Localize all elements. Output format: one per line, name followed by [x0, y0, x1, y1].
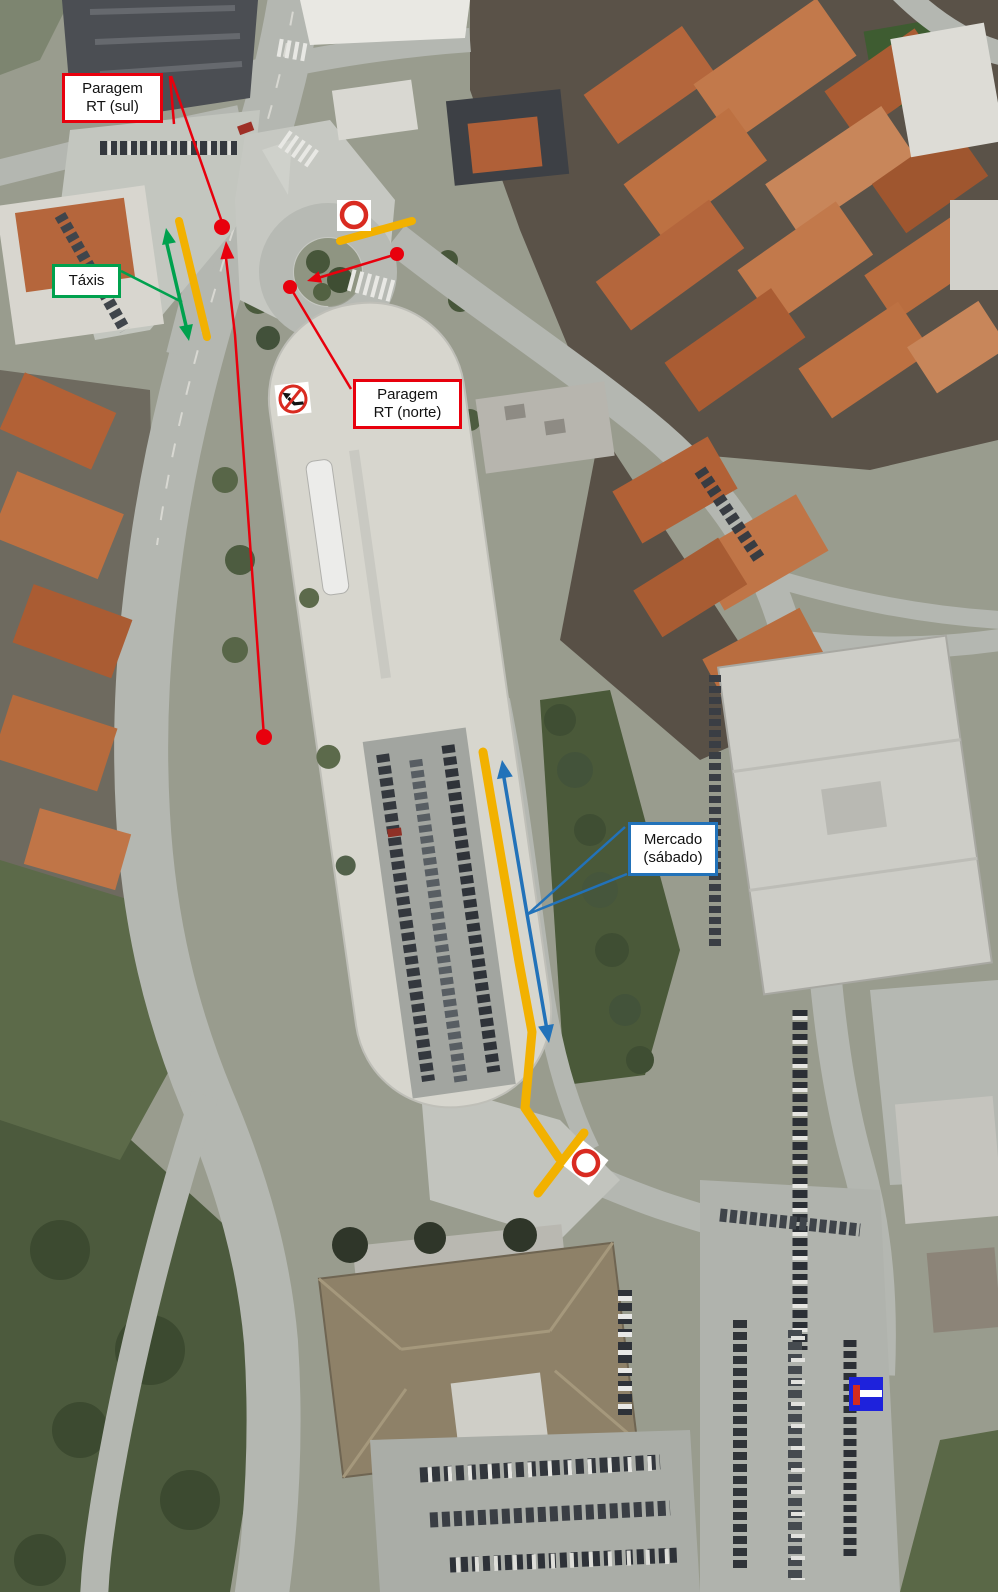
bus-route-sul-line	[226, 258, 264, 737]
closure-bar-market-street	[483, 752, 559, 1158]
market-zone-arrowhead-south	[538, 1024, 554, 1043]
paragem-norte-leader-line	[290, 287, 351, 389]
paragem-rt-sul-label: Paragem RT (sul)	[62, 73, 163, 123]
no-left-turn-sign	[274, 382, 311, 416]
mercado-sabado-label: Mercado (sábado)	[628, 822, 718, 876]
annotated-satellite-map: Paragem RT (sul) Táxis Paragem RT (norte…	[0, 0, 998, 1592]
mercado-sabado-label-line2: (sábado)	[643, 849, 702, 867]
market-annotations	[497, 760, 627, 1043]
bus-route-origin-dot	[256, 729, 272, 745]
paragem-rt-sul-label-line1: Paragem	[82, 80, 143, 98]
mercado-sabado-label-line1: Mercado	[644, 831, 702, 849]
taxi-zone-arrowhead-north	[162, 228, 176, 245]
paragem-sul-leader-line	[171, 76, 223, 225]
paragem-rt-sul-label-line2: RT (sul)	[86, 98, 139, 116]
mercado-leader-line-lower	[528, 874, 627, 914]
paragem-rt-norte-label-line1: Paragem	[377, 386, 438, 404]
dead-end-sign	[849, 1377, 883, 1411]
bus-route-sul-arrowhead	[220, 241, 234, 259]
mercado-leader-line-upper	[528, 827, 625, 914]
bus-route-norte-line	[318, 254, 397, 278]
taxi-zone-arrowhead-south	[179, 324, 193, 341]
paragem-rt-norte-label-line2: RT (norte)	[374, 404, 442, 422]
market-zone-arrowhead-north	[497, 760, 513, 779]
taxis-label: Táxis	[52, 264, 121, 298]
map-annotations	[0, 0, 998, 1592]
bus-stop-sul-dot	[214, 219, 230, 235]
bus-route-norte-origin-dot	[390, 247, 404, 261]
no-entry-sign-north	[337, 200, 371, 231]
bus-route-norte-arrowhead	[307, 271, 322, 282]
road-closure-bars	[179, 221, 584, 1193]
paragem-rt-norte-label: Paragem RT (norte)	[353, 379, 462, 429]
taxis-label-text: Táxis	[69, 272, 105, 290]
